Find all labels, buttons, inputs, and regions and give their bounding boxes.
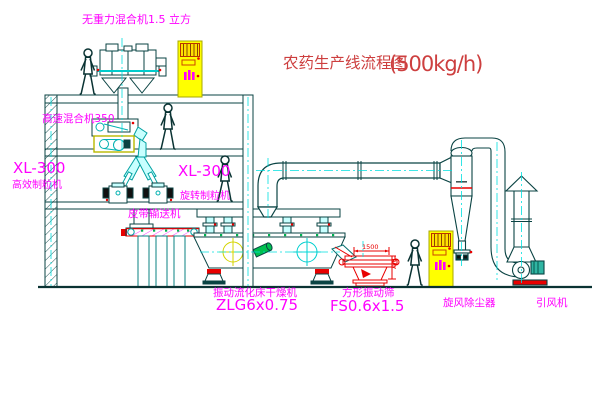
label-granulator-right-model: XL-300 — [178, 162, 230, 180]
second-floor-slab — [45, 149, 253, 156]
conveyor-support-1 — [138, 236, 149, 287]
label-granulator-left-model: XL-300 — [13, 159, 65, 177]
mixer-discharge-pipe — [118, 88, 128, 120]
chute — [138, 139, 146, 157]
control-cabinet-top — [178, 41, 202, 97]
roof-slab — [45, 95, 253, 103]
dryer-leg-right — [311, 269, 333, 284]
label-granulator-right-name: 旋转制粒机 — [180, 189, 230, 202]
dryer-trough — [194, 237, 345, 268]
conveyor-support-3 — [174, 236, 185, 287]
cad-canvas: 无重力混合机1.5 立方 农药生产线流程图 (500kg/h) 高速混合机350… — [0, 0, 600, 403]
conveyor-support-2 — [156, 236, 167, 287]
control-cabinet-ground — [429, 231, 453, 287]
fluid-bed-dryer — [194, 209, 356, 284]
dryer-air-ports — [203, 217, 331, 233]
elbow-duct — [258, 163, 440, 207]
label-belt-conveyor: 皮带输送机 — [128, 207, 181, 220]
mixer-hopper-right — [130, 78, 154, 93]
worker-figure-ground — [407, 240, 423, 286]
induced-draft-fan — [513, 261, 548, 285]
dryer-leg-left — [203, 269, 225, 284]
title-capacity: (500kg/h) — [389, 52, 482, 76]
fan-base — [513, 280, 547, 285]
dryer-exhaust-duct — [258, 157, 452, 217]
dimension-text-750: 750 — [391, 258, 398, 270]
zero-gravity-mixer — [90, 44, 166, 120]
label-dryer-model: ZLG6x0.75 — [216, 296, 298, 314]
conveyor-roller-left — [128, 229, 134, 235]
granulator-left — [103, 183, 133, 203]
belt-conveyor — [121, 228, 199, 287]
screen-flow-arrow — [361, 269, 371, 278]
pesticide-line-flow-diagram: 无重力混合机1.5 立方 农药生产线流程图 (500kg/h) 高速混合机350… — [0, 0, 600, 403]
worker-figure-floor2 — [160, 104, 176, 150]
cyclone-cone — [451, 196, 472, 241]
label-screen-model: FS0.6x1.5 — [330, 297, 404, 315]
cyclone-inlet-transition — [440, 157, 452, 183]
label-fan: 引风机 — [536, 296, 568, 309]
label-granulator-left-name: 高效制粒机 — [12, 178, 62, 191]
dimension-text-1500: 1500 — [362, 243, 379, 251]
fan-scroll — [513, 262, 530, 279]
label-high-speed-mixer: 高速混合机350 — [42, 112, 115, 125]
label-gravity-mixer: 无重力混合机1.5 立方 — [82, 12, 191, 26]
granulator-right — [143, 183, 173, 203]
label-cyclone: 旋风除尘器 — [443, 296, 496, 309]
